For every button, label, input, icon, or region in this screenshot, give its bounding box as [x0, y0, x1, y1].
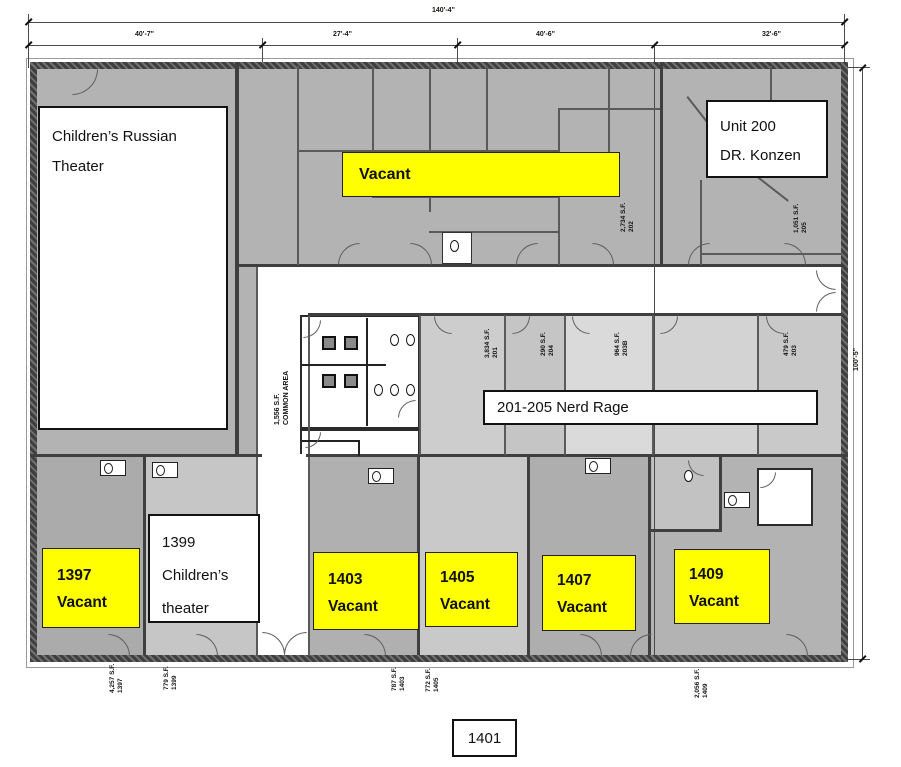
label-1409-vacant: 1409 Vacant	[674, 549, 770, 624]
shape: Children’s Russian	[52, 122, 220, 152]
shape: theater	[162, 592, 252, 625]
shape: 1397	[57, 562, 133, 589]
toilet-icon	[374, 384, 383, 396]
wc-fixture	[585, 458, 611, 474]
toilet	[450, 240, 459, 252]
toilet-icon	[390, 384, 399, 396]
wall-segment	[652, 315, 654, 455]
wall-segment	[719, 457, 722, 531]
room-fill	[262, 454, 306, 457]
sink-counter	[322, 374, 336, 388]
shape: 1407	[557, 567, 629, 594]
dim-right: 100'-5"	[853, 348, 860, 371]
shape: Theater	[52, 152, 220, 182]
shape: Vacant	[440, 591, 511, 618]
wall-segment	[30, 454, 848, 457]
shape: Children’s	[162, 559, 252, 592]
wall-segment	[235, 62, 239, 457]
toilet-icon	[406, 334, 415, 346]
room-203B	[565, 315, 653, 455]
dim-line-right	[862, 68, 863, 660]
shape: Vacant	[689, 588, 763, 615]
room-204	[505, 315, 565, 455]
shape: 1399	[162, 526, 252, 559]
toilet-icon	[406, 384, 415, 396]
label-1403-vacant: 1403 Vacant	[313, 552, 419, 630]
wall-segment	[660, 62, 663, 265]
wall-segment	[372, 66, 374, 152]
dim-seg1: 40'-7"	[135, 31, 154, 38]
label-vacant-top: Vacant	[342, 152, 620, 197]
corridor	[258, 267, 842, 313]
label-nerd-rage: 201-205 Nerd Rage	[483, 390, 818, 425]
shape: 1403	[328, 566, 412, 593]
room-fill	[653, 315, 758, 455]
room-1409-washroom	[652, 457, 720, 531]
label-1407-vacant: 1407 Vacant	[542, 555, 636, 631]
wall-exterior-top	[30, 62, 848, 69]
wall-segment	[358, 440, 360, 456]
wall-segment	[486, 66, 488, 152]
shape: Vacant	[57, 589, 133, 616]
wall-segment	[527, 457, 530, 655]
wall-exterior-left	[30, 62, 37, 662]
wall-segment	[700, 253, 842, 255]
room-201	[420, 315, 505, 455]
wall-segment	[143, 457, 146, 655]
room-203	[758, 315, 842, 455]
toilet-icon	[684, 470, 693, 482]
dim-line-segments	[28, 45, 845, 46]
dim-extension-line	[654, 45, 655, 656]
label-1397-vacant: 1397 Vacant	[42, 548, 140, 628]
dim-seg3: 40'-6"	[536, 31, 555, 38]
dim-line-overall	[28, 22, 845, 23]
wall-segment	[297, 66, 299, 265]
sink-counter	[322, 336, 336, 350]
shape: 1409	[689, 561, 763, 588]
toilet-icon	[390, 334, 399, 346]
dim-overall: 140'-4"	[432, 7, 455, 14]
label-1401: 1401	[452, 719, 517, 757]
shape: DR. Konzen	[720, 141, 820, 170]
shape: Vacant	[557, 594, 629, 621]
label-childrens-russian-theater: Children’s Russian Theater	[38, 106, 228, 430]
wall-segment	[504, 315, 506, 455]
dimension-line	[846, 67, 870, 68]
floor-plan: 140'-4" 40'-7" 27'-4" 40'-6" 32'-6" 100'…	[0, 0, 901, 767]
label-unit-200: Unit 200 DR. Konzen	[706, 100, 828, 178]
wall-segment	[650, 529, 722, 532]
wall-segment	[564, 315, 566, 455]
label-1405-vacant: 1405 Vacant	[425, 552, 518, 627]
wc-fixture	[368, 468, 394, 484]
dimension-line	[846, 659, 870, 660]
dim-seg4: 32'-6"	[762, 31, 781, 38]
shape: Unit 200	[720, 112, 820, 141]
wall-segment	[757, 315, 759, 455]
wall-segment	[366, 318, 368, 426]
wc-fixture	[152, 462, 178, 478]
shape: 201-205 Nerd Rage	[497, 399, 629, 416]
wall-segment	[302, 364, 386, 366]
wall-exterior-bottom	[30, 655, 848, 662]
sink-counter	[344, 336, 358, 350]
wall-segment	[239, 264, 842, 267]
sink-counter	[344, 374, 358, 388]
dim-seg2: 27'-4"	[333, 31, 352, 38]
label-1399-childrens-theater: 1399 Children’s theater	[148, 514, 260, 623]
wall-segment	[648, 457, 651, 655]
shape: Vacant	[359, 166, 411, 183]
shape: 1405	[440, 564, 511, 591]
wall-segment	[558, 108, 662, 110]
wc-fixture	[724, 492, 750, 508]
wall-segment	[419, 315, 421, 455]
wall-exterior-right	[841, 62, 848, 662]
shape: 1401	[468, 730, 501, 747]
wc-fixture	[100, 460, 126, 476]
shape: Vacant	[328, 593, 412, 620]
